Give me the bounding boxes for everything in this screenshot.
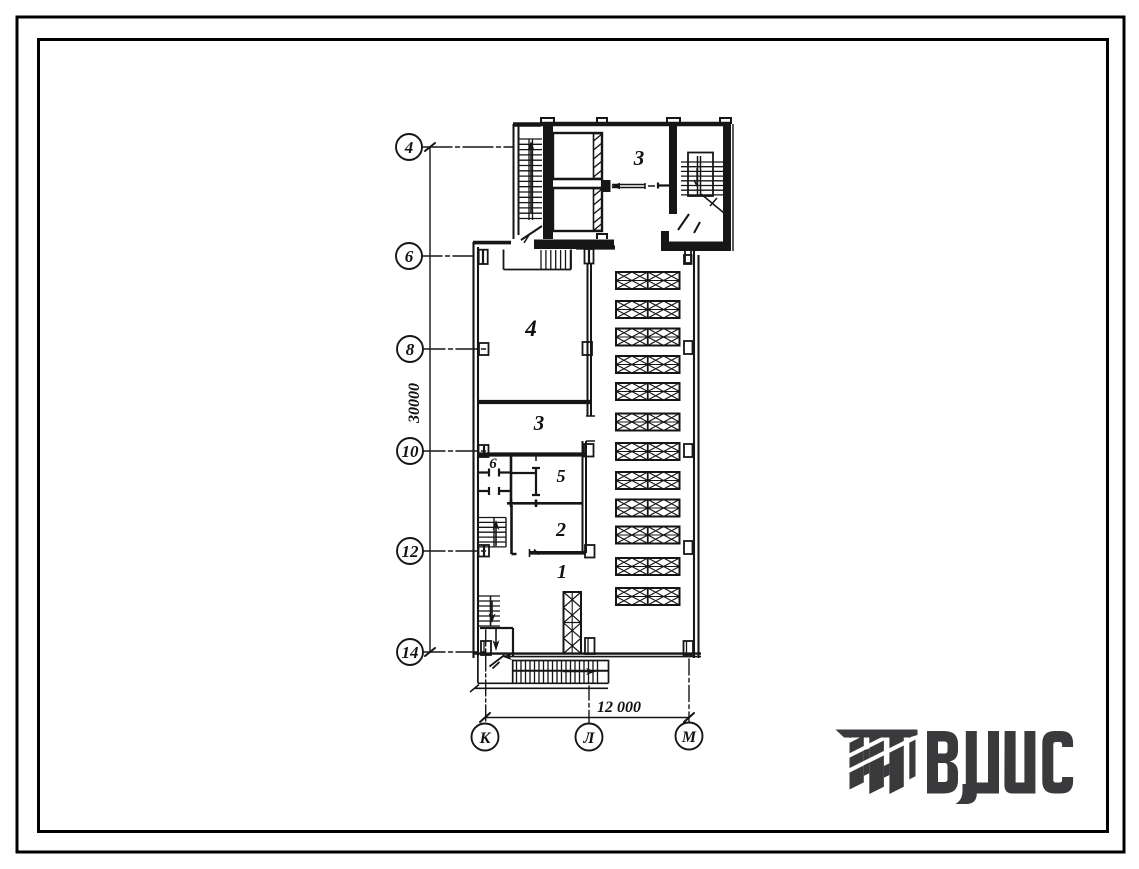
svg-text:6: 6 — [405, 247, 414, 266]
svg-text:10: 10 — [402, 442, 420, 461]
svg-text:М: М — [681, 729, 697, 746]
svg-text:30000: 30000 — [406, 383, 423, 424]
svg-text:3: 3 — [633, 146, 645, 170]
svg-text:1: 1 — [557, 561, 567, 583]
svg-text:Л: Л — [583, 730, 596, 747]
svg-text:14: 14 — [402, 643, 419, 662]
svg-text:8: 8 — [406, 340, 415, 359]
svg-text:4: 4 — [524, 316, 537, 341]
svg-text:2: 2 — [555, 519, 566, 541]
svg-text:4: 4 — [404, 138, 414, 157]
svg-text:6: 6 — [489, 456, 497, 472]
svg-text:5: 5 — [557, 466, 566, 486]
svg-text:12: 12 — [402, 542, 420, 561]
svg-text:3: 3 — [533, 411, 545, 435]
svg-text:12 000: 12 000 — [597, 699, 641, 716]
svg-text:К: К — [479, 730, 492, 747]
